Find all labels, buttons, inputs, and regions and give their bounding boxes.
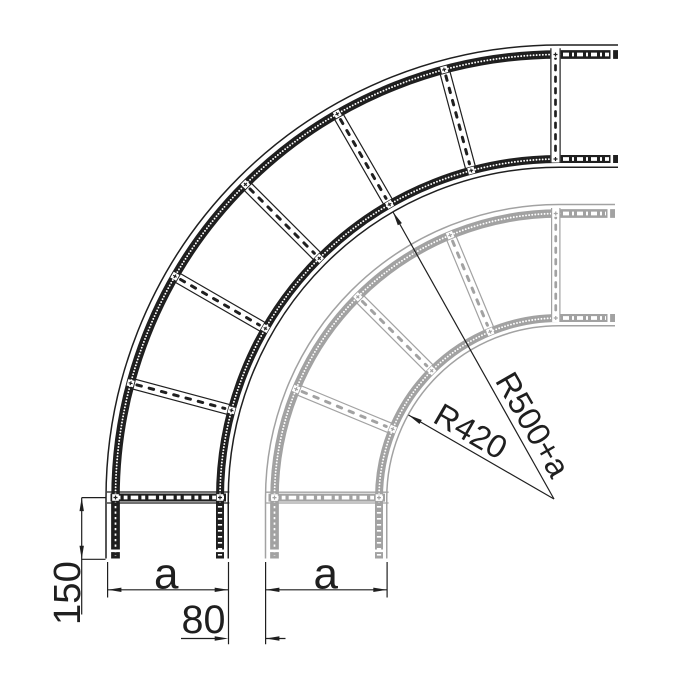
svg-text:a: a: [154, 550, 179, 599]
svg-text:150: 150: [46, 561, 89, 625]
svg-text:80: 80: [182, 598, 226, 642]
svg-text:R500+a: R500+a: [488, 366, 577, 484]
svg-text:a: a: [314, 550, 339, 599]
svg-text:R420: R420: [428, 396, 513, 466]
